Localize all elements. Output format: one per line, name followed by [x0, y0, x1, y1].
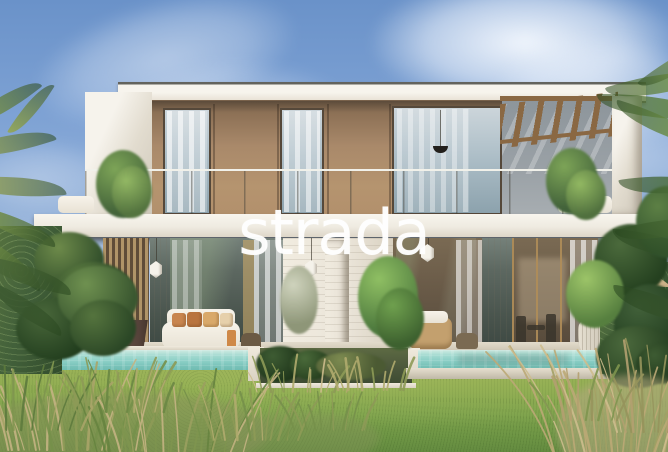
palm-frond	[0, 119, 57, 170]
palm-frond	[0, 205, 60, 247]
foliage-bush	[70, 300, 136, 356]
palm-frond	[0, 171, 67, 202]
villa-exterior-photo: strada	[0, 0, 668, 452]
foliage-bush	[112, 166, 152, 218]
watermark-logo: strada	[238, 202, 429, 264]
foliage-bush	[280, 266, 318, 334]
foliage-bush	[376, 288, 424, 350]
foliage-bush	[316, 352, 386, 380]
foliage-bush	[566, 170, 606, 220]
